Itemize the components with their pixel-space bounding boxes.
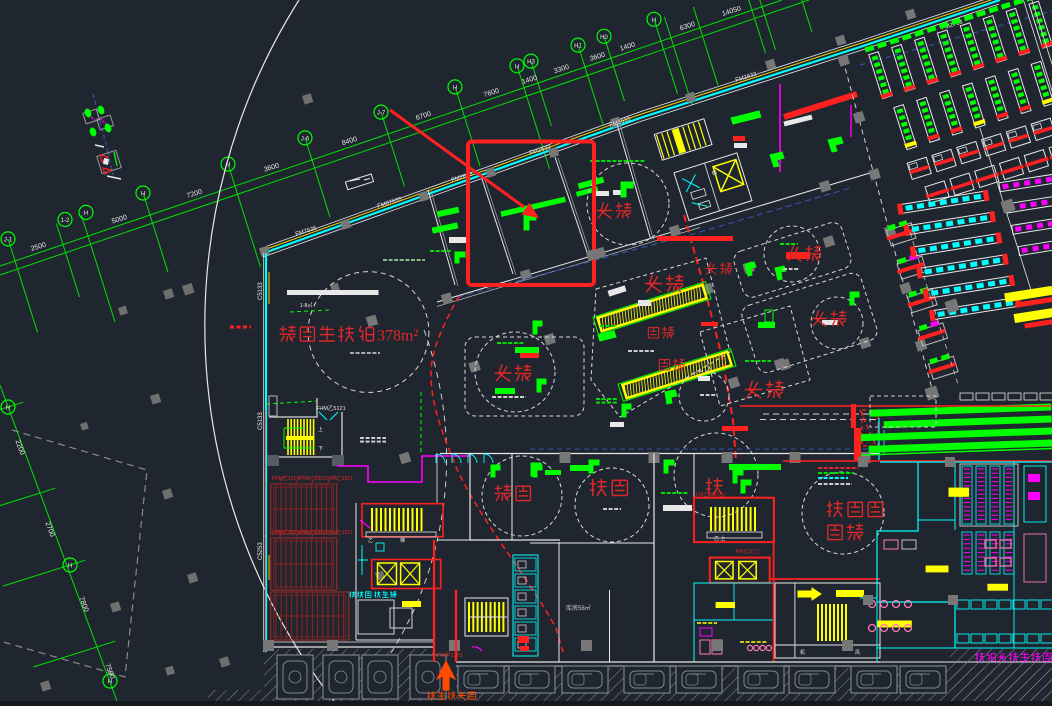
svg-text:H: H xyxy=(84,211,88,217)
svg-text:C5253: C5253 xyxy=(258,542,264,560)
svg-text:J-7: J-7 xyxy=(377,111,386,117)
svg-text:H1: H1 xyxy=(574,44,582,50)
svg-text:风: 风 xyxy=(855,650,860,656)
svg-text:下: 下 xyxy=(318,446,323,452)
svg-text:乙: 乙 xyxy=(368,537,373,544)
svg-text:H0: H0 xyxy=(600,35,608,41)
svg-text:H: H xyxy=(652,18,656,24)
svg-text:J-1: J-1 xyxy=(4,237,13,243)
svg-text:FM甲1321: FM甲1321 xyxy=(437,652,463,659)
svg-text:H: H xyxy=(141,192,145,198)
svg-text:H3: H3 xyxy=(527,60,535,66)
svg-text:C5133: C5133 xyxy=(258,282,264,300)
svg-text:C5133: C5133 xyxy=(258,412,264,430)
svg-text:机: 机 xyxy=(800,649,805,656)
svg-text:FM乙2(乙): FM乙2(乙) xyxy=(736,548,760,555)
svg-text:上: 上 xyxy=(318,426,323,433)
svg-text:FHM乙5121: FHM乙5121 xyxy=(316,405,346,412)
svg-text:378m²: 378m² xyxy=(377,328,418,345)
svg-text:FM乙028(乙): FM乙028(乙) xyxy=(696,491,725,498)
svg-text:H: H xyxy=(68,564,72,570)
svg-text:1-8㎡: 1-8㎡ xyxy=(300,302,312,309)
svg-text:J-6: J-6 xyxy=(301,136,310,142)
svg-text:H: H xyxy=(108,680,112,686)
svg-text:1-2: 1-2 xyxy=(61,218,70,224)
svg-text:H: H xyxy=(515,64,519,70)
svg-text:乙 上: 乙 上 xyxy=(714,535,725,542)
svg-text:库房58㎡: 库房58㎡ xyxy=(566,604,591,612)
svg-text:梯: 梯 xyxy=(400,537,405,544)
svg-text:H: H xyxy=(6,406,10,412)
svg-text:H: H xyxy=(453,85,457,91)
